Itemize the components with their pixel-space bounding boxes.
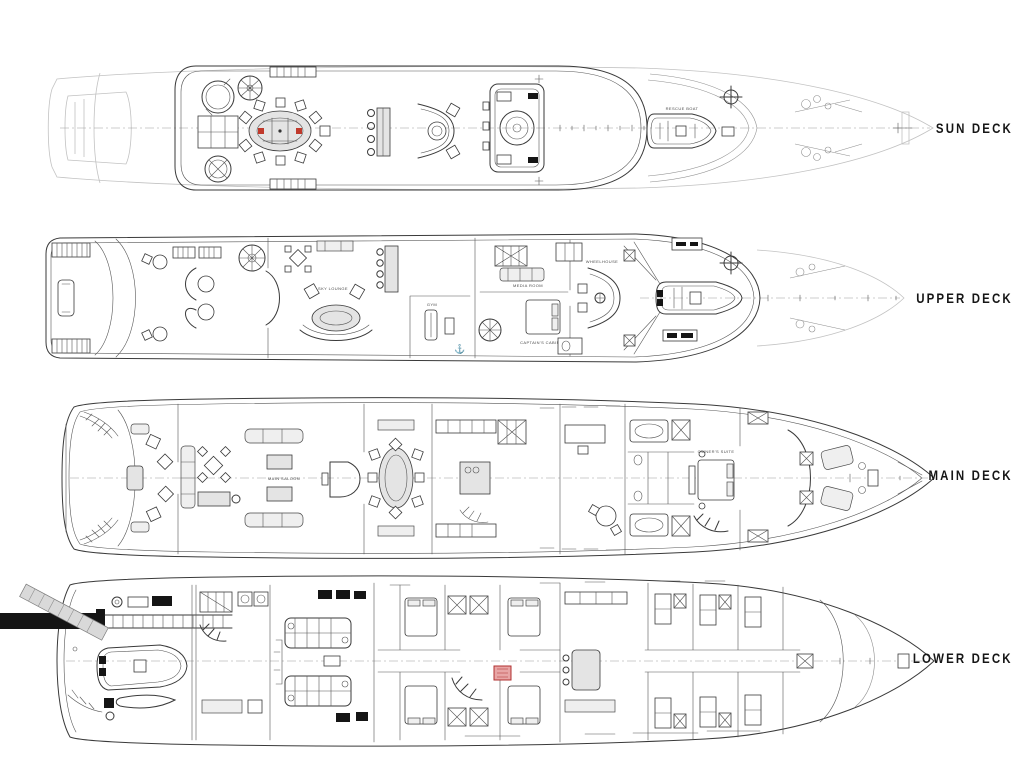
galley — [436, 420, 526, 537]
gangway-ramp — [20, 584, 109, 640]
owners-suite-label: OWNER'S SUITE — [698, 449, 735, 454]
red-accent-left — [258, 128, 264, 134]
lower-deck-plan — [0, 576, 934, 746]
boat-deck — [656, 238, 742, 341]
pantry — [556, 243, 582, 261]
media-room: MEDIA ROOM — [495, 246, 544, 288]
spiral-stair — [238, 76, 262, 100]
dining-room — [368, 420, 424, 536]
crew-cabins — [645, 583, 800, 740]
round-seat — [205, 156, 231, 182]
deck-plans-drawing: RESCUE BOAT — [0, 0, 1024, 768]
sun-deck-dining-table — [239, 98, 330, 165]
sky-lounge-label: SKY LOUNGE — [318, 286, 348, 291]
garage-bulkhead — [192, 585, 196, 740]
gym-label: GYM — [427, 302, 437, 307]
sun-deck-plan: RESCUE BOAT — [48, 66, 933, 190]
lower-deck-label: LOWER DECK — [913, 650, 1013, 666]
captains-cabin-label: CAPTAIN'S CABIN — [520, 340, 560, 345]
captains-cabin: CAPTAIN'S CABIN — [479, 300, 560, 345]
study — [560, 404, 625, 554]
rescue-boat-label: RESCUE BOAT — [666, 106, 699, 111]
yacht-deck-plans-page: RESCUE BOAT — [0, 0, 1024, 768]
stern-stairs — [52, 239, 136, 357]
crew-mess — [563, 592, 627, 712]
mast-block — [483, 75, 544, 185]
gym: GYM ⚓ — [410, 296, 470, 358]
guest-cabins — [378, 585, 560, 740]
sky-lounge: SKY LOUNGE — [285, 241, 372, 341]
upper-bar — [377, 246, 398, 292]
upper-deck-plan: SKY LOUNGE GYM ⚓ MEDIA ROOM — [46, 234, 904, 362]
rescue-boat: RESCUE BOAT — [647, 86, 742, 148]
side-entry-doors — [748, 412, 768, 542]
upper-deck-label: UPPER DECK — [916, 290, 1013, 306]
red-accent-right — [296, 128, 302, 134]
media-room-label: MEDIA ROOM — [513, 283, 543, 288]
main-deck-label: MAIN DECK — [929, 467, 1013, 483]
engine-room — [274, 590, 368, 722]
curved-settee — [418, 103, 460, 159]
wheelhouse-label: WHEELHOUSE — [586, 259, 618, 264]
anchor-icon: ⚓ — [454, 343, 465, 354]
curved-bulkhead — [266, 271, 280, 325]
sun-deck-bar — [368, 108, 391, 156]
main-saloon-label: MAIN SALOON — [268, 476, 300, 481]
owners-suite: OWNER'S SUITE — [689, 408, 740, 550]
passerelle — [0, 584, 232, 651]
upper-spiral-stair — [239, 245, 265, 271]
crew-laundry — [200, 592, 268, 713]
sunpad-group — [198, 116, 238, 148]
sun-deck-label: SUN DECK — [936, 120, 1013, 136]
aft-deck-lounge — [142, 247, 221, 341]
main-deck-plan: MAIN SALOON — [62, 398, 934, 559]
jacuzzi — [202, 79, 234, 115]
